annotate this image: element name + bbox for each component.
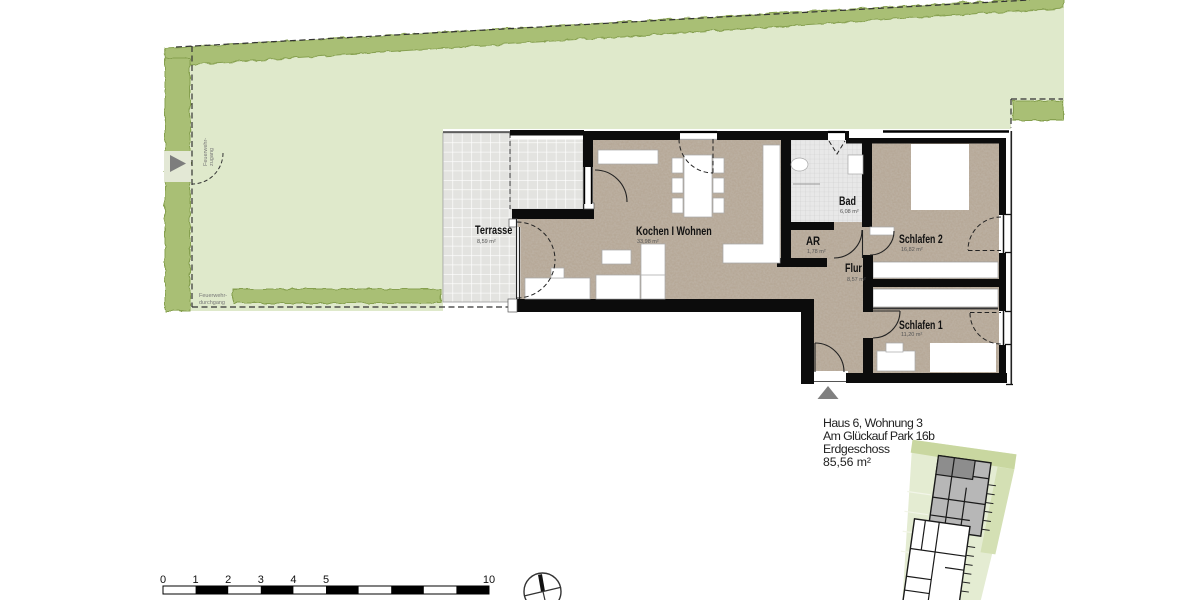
svg-text:6,08 m²: 6,08 m² [840, 209, 859, 215]
svg-text:5: 5 [323, 574, 329, 586]
svg-text:zugang: zugang [209, 148, 215, 166]
svg-text:AR: AR [806, 235, 820, 248]
svg-text:16,82 m²: 16,82 m² [901, 247, 923, 253]
svg-text:1: 1 [193, 574, 199, 586]
svg-text:Schlafen 2: Schlafen 2 [899, 234, 943, 246]
svg-text:33,98 m²: 33,98 m² [637, 239, 659, 245]
svg-text:Kochen I Wohnen: Kochen I Wohnen [636, 225, 712, 239]
svg-text:Bad: Bad [839, 196, 856, 208]
svg-text:11,20 m²: 11,20 m² [901, 332, 922, 338]
svg-text:2: 2 [225, 574, 231, 586]
svg-text:8,59 m²: 8,59 m² [477, 239, 496, 245]
svg-text:Flur: Flur [845, 263, 862, 275]
svg-text:3: 3 [258, 574, 264, 586]
svg-text:Feuerwehr-: Feuerwehr- [199, 293, 227, 299]
svg-text:durchgang: durchgang [199, 300, 225, 306]
svg-text:10: 10 [483, 574, 495, 586]
svg-text:4: 4 [290, 574, 296, 586]
svg-text:0: 0 [160, 574, 166, 586]
svg-text:8,57 m²: 8,57 m² [847, 277, 866, 283]
svg-text:Terrasse: Terrasse [475, 224, 512, 238]
svg-text:Erdgeschoss: Erdgeschoss [823, 442, 890, 456]
svg-text:Haus 6, Wohnung 3: Haus 6, Wohnung 3 [823, 416, 923, 430]
svg-text:85,56 m²: 85,56 m² [823, 455, 871, 469]
svg-text:Schlafen 1: Schlafen 1 [899, 320, 943, 332]
svg-text:1,78 m²: 1,78 m² [807, 249, 826, 255]
